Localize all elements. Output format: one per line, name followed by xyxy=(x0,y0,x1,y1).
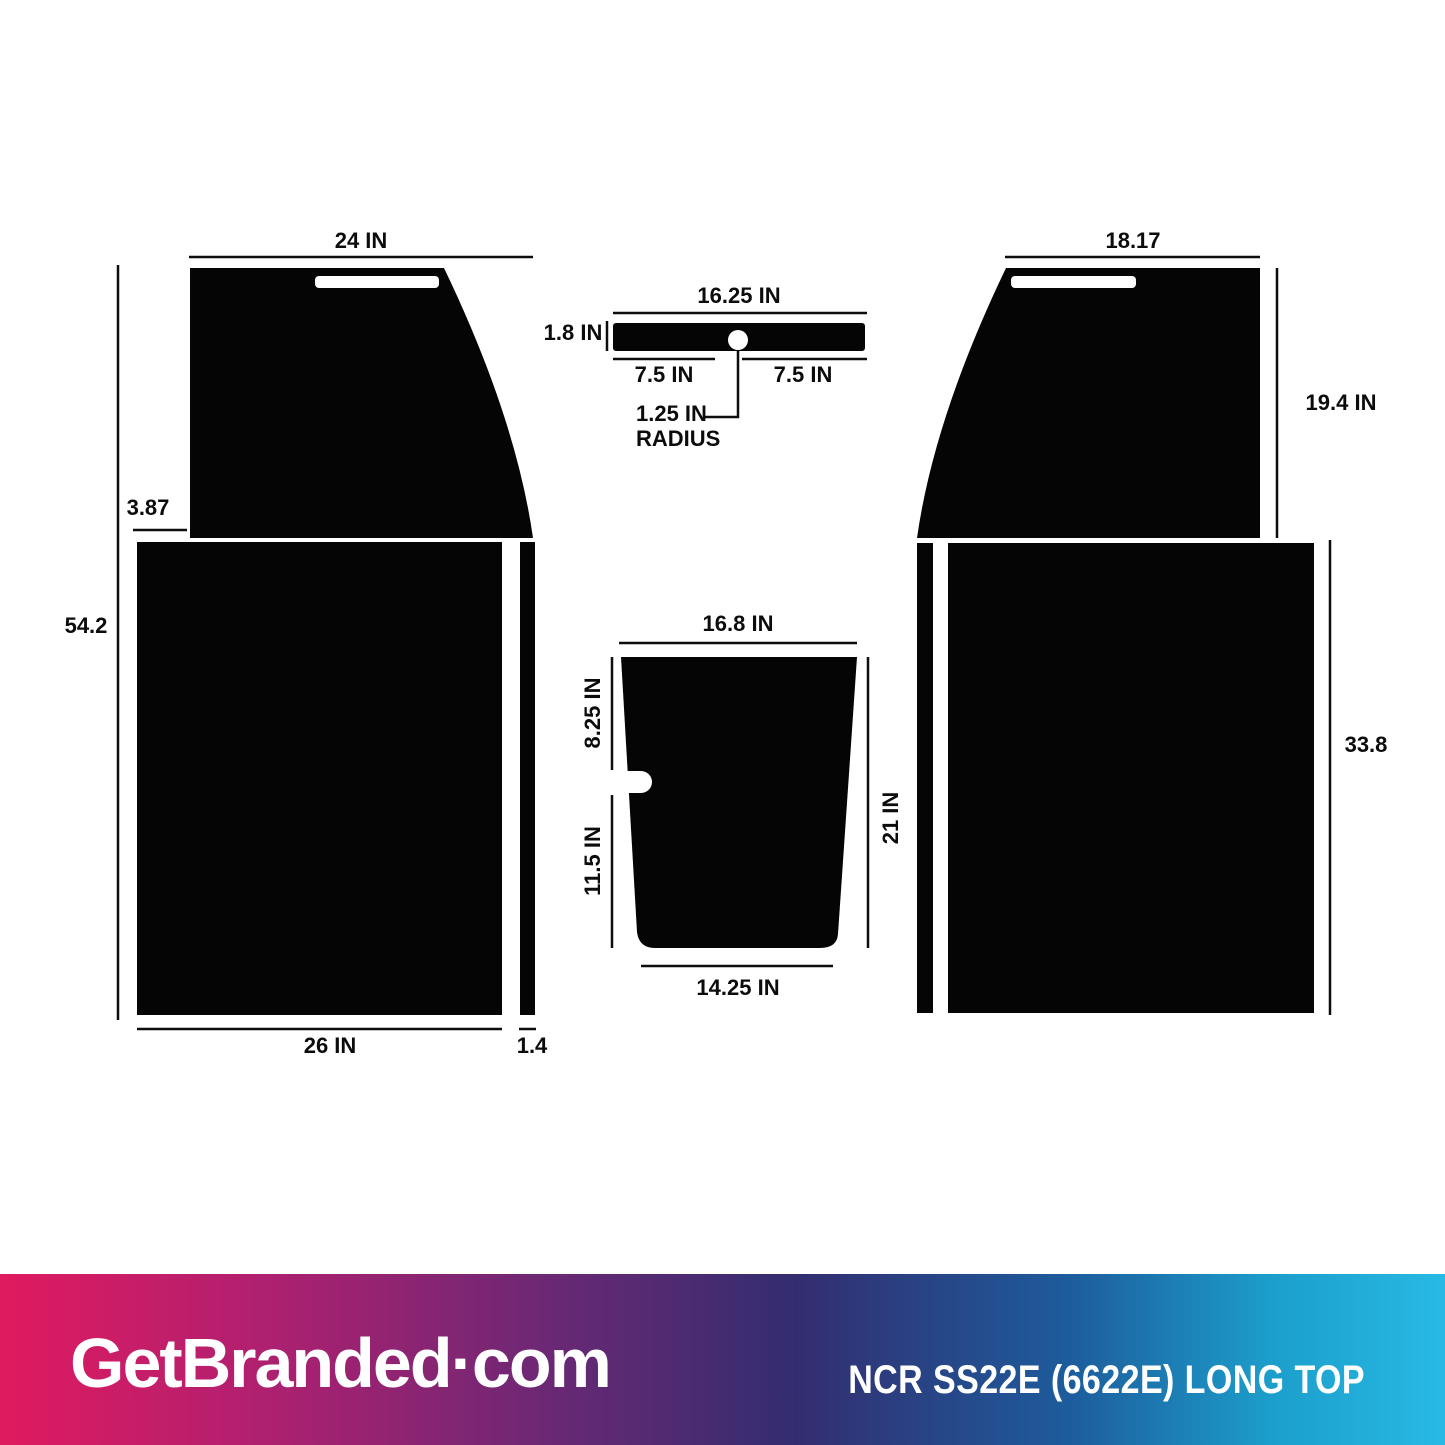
left-narrow-strip-shape xyxy=(520,542,535,1015)
diagram-shape-layer xyxy=(0,0,1445,1445)
center-trapezoid-notch-cutout xyxy=(612,771,652,793)
dim-label-bar-width: 16.25 IN xyxy=(697,283,780,309)
dim-label-bar-left-half: 7.5 IN xyxy=(635,362,694,388)
product-title: NCR SS22E (6622E) LONG TOP xyxy=(848,1360,1365,1400)
dim-label-trap-upper-left-height: 8.25 IN xyxy=(580,678,606,749)
dim-label-right-top-width: 18.17 xyxy=(1105,228,1160,254)
dim-label-left-total-height: 54.2 xyxy=(65,613,108,639)
hole-radius-word: RADIUS xyxy=(636,426,720,451)
right-top-panel-slot-cutout xyxy=(1011,276,1136,288)
footer-banner: GetBranded·com NCR SS22E (6622E) LONG TO… xyxy=(0,1274,1445,1445)
dim-label-left-top-width: 24 IN xyxy=(335,228,388,254)
left-top-panel-shape xyxy=(190,268,533,538)
template-diagram-page: 24 IN 54.2 3.87 26 IN 1.4 16.25 IN 1.8 I… xyxy=(0,0,1445,1445)
dim-label-left-offset: 3.87 xyxy=(127,495,170,521)
right-narrow-strip-shape xyxy=(917,543,933,1013)
dim-label-right-base-height: 33.8 xyxy=(1345,732,1388,758)
center-bar-hole-cutout xyxy=(728,330,748,350)
dim-label-left-base-width: 26 IN xyxy=(304,1033,357,1059)
hole-radius-note: 1.25 IN RADIUS xyxy=(636,401,720,451)
dim-label-bar-right-half: 7.5 IN xyxy=(774,362,833,388)
dim-label-bar-height: 1.8 IN xyxy=(544,320,603,346)
dim-label-trap-top-width: 16.8 IN xyxy=(703,611,774,637)
hole-radius-value: 1.25 IN xyxy=(636,401,720,426)
dim-label-trap-lower-left-height: 11.5 IN xyxy=(580,826,606,896)
dim-label-left-strip-width: 1.4 xyxy=(517,1033,548,1059)
dim-label-trap-right-height: 21 IN xyxy=(878,792,904,845)
right-base-panel-shape xyxy=(948,543,1314,1013)
dim-label-right-top-height: 19.4 IN xyxy=(1306,390,1377,416)
left-base-panel-shape xyxy=(137,542,502,1015)
brand-logo: GetBranded·com xyxy=(70,1328,610,1398)
left-top-panel-slot-cutout xyxy=(315,276,439,288)
right-top-panel-shape xyxy=(917,268,1260,538)
dim-label-trap-bottom-width: 14.25 IN xyxy=(696,975,779,1001)
center-trapezoid-panel-shape xyxy=(621,657,857,948)
